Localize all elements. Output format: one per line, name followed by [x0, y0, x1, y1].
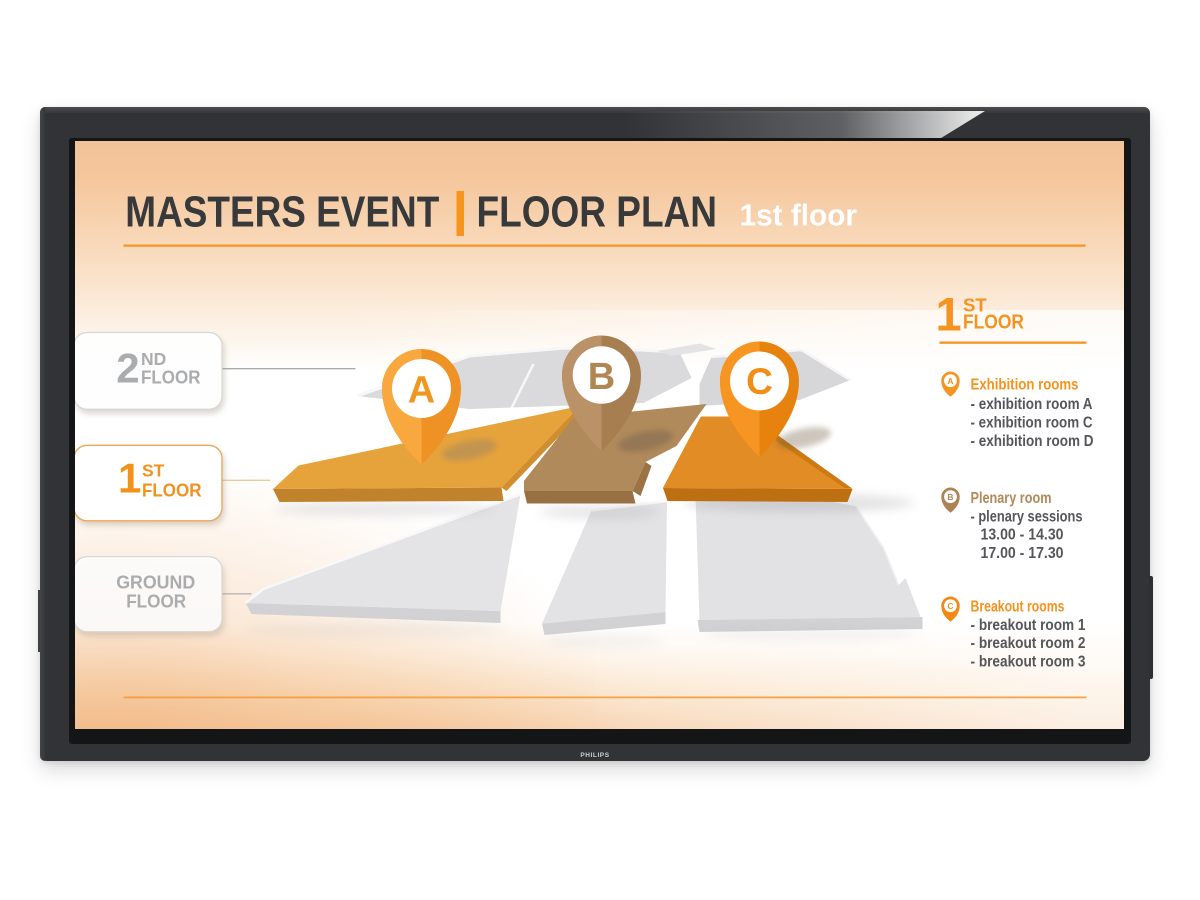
svg-text:1: 1: [936, 288, 962, 341]
svg-text:17.00 - 17.30: 17.00 - 17.30: [981, 545, 1064, 562]
svg-text:FLOOR PLAN: FLOOR PLAN: [477, 188, 718, 236]
svg-text:- breakout room 3: - breakout room 3: [971, 654, 1086, 671]
svg-text:GROUND: GROUND: [116, 571, 195, 592]
svg-text:A: A: [408, 370, 435, 412]
svg-text:Breakout rooms: Breakout rooms: [971, 599, 1065, 616]
svg-text:- exhibition room D: - exhibition room D: [971, 433, 1094, 450]
svg-text:Exhibition rooms: Exhibition rooms: [971, 376, 1079, 393]
svg-text:2: 2: [116, 345, 139, 392]
svg-text:- plenary sessions: - plenary sessions: [971, 508, 1083, 525]
svg-text:1st floor: 1st floor: [740, 198, 858, 233]
svg-text:Plenary room: Plenary room: [971, 490, 1052, 507]
svg-text:- breakout room 2: - breakout room 2: [971, 635, 1086, 652]
svg-text:FLOOR: FLOOR: [963, 312, 1024, 334]
svg-text:ST: ST: [142, 461, 165, 481]
svg-text:B: B: [947, 492, 953, 502]
svg-text:- exhibition room C: - exhibition room C: [971, 415, 1093, 432]
svg-text:C: C: [947, 601, 953, 611]
svg-text:FLOOR: FLOOR: [142, 480, 202, 501]
svg-text:A: A: [947, 376, 953, 386]
svg-text:- breakout room 1: - breakout room 1: [971, 617, 1086, 634]
svg-text:FLOOR: FLOOR: [126, 591, 186, 612]
svg-text:1: 1: [118, 455, 141, 502]
svg-text:- exhibition room A: - exhibition room A: [971, 396, 1093, 413]
svg-text:B: B: [588, 356, 615, 398]
svg-text:MASTERS EVENT: MASTERS EVENT: [125, 188, 439, 236]
svg-text:13.00 - 14.30: 13.00 - 14.30: [981, 527, 1064, 544]
svg-text:FLOOR: FLOOR: [141, 366, 201, 387]
svg-text:C: C: [746, 361, 773, 402]
